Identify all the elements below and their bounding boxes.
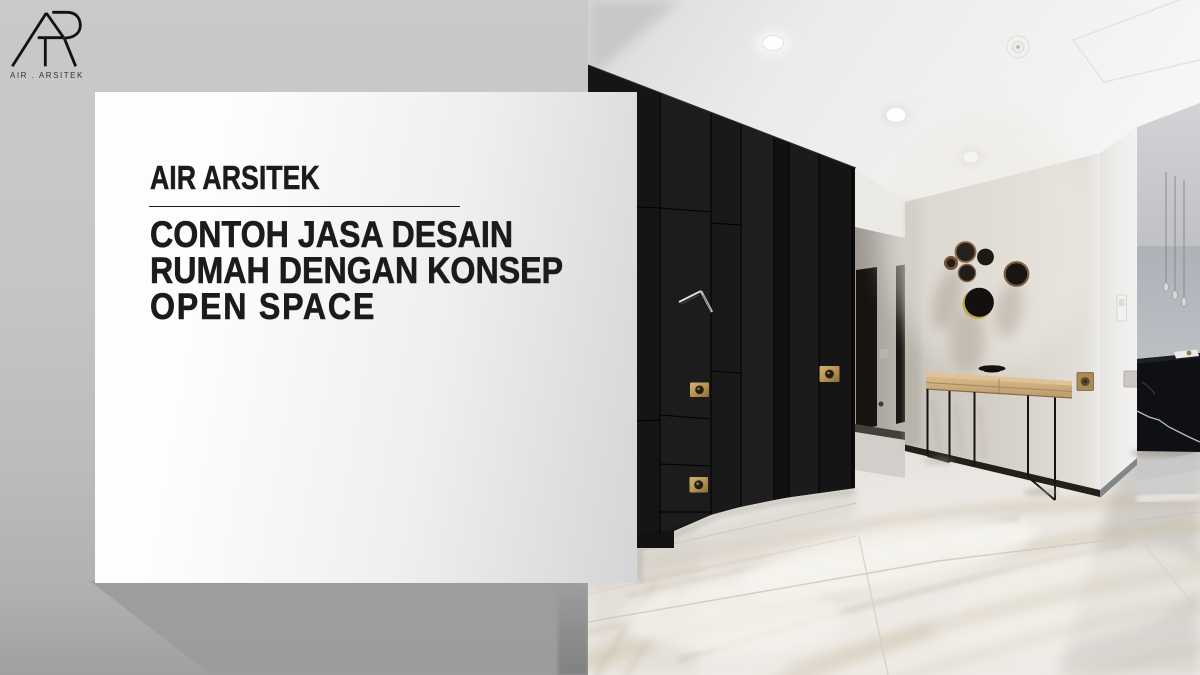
svg-text:AIR . ARSITEK: AIR . ARSITEK bbox=[10, 71, 84, 80]
